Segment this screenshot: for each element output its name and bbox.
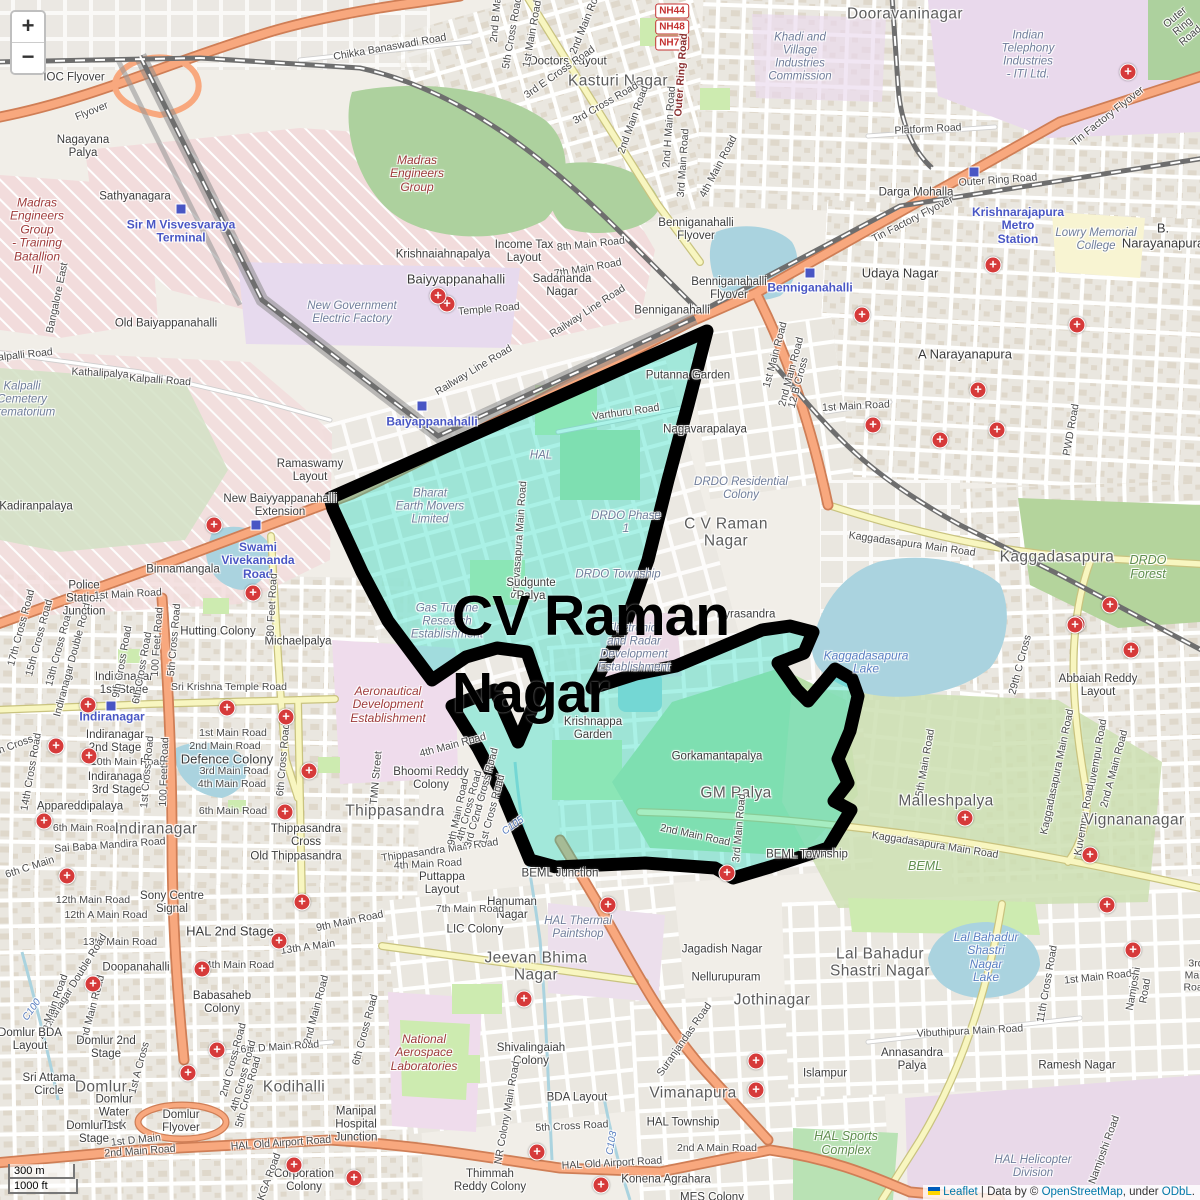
zoom-in-button[interactable]: + (12, 12, 44, 43)
attribution-under: , under (1123, 1186, 1162, 1198)
zoom-out-button[interactable]: − (12, 43, 44, 73)
map-canvas[interactable]: IOC FlyoverFlyoverNagayana PalyaSathyana… (0, 0, 1200, 1200)
odbl-link[interactable]: ODbL (1162, 1186, 1192, 1198)
zoom-control: + − (10, 10, 46, 75)
scale-control: 300 m 1000 ft (8, 1164, 78, 1194)
leaflet-link[interactable]: Leaflet (943, 1186, 978, 1198)
attribution-bar: Leaflet | Data by © OpenStreetMap, under… (923, 1185, 1200, 1200)
attribution-text: | Data by © (978, 1186, 1042, 1198)
highlight-area-title: CV Raman Nagar (452, 578, 729, 732)
attribution-period: . (1192, 1186, 1195, 1198)
scale-imperial: 1000 ft (8, 1179, 78, 1194)
scale-metric: 300 m (8, 1164, 75, 1179)
ukraine-flag-icon (928, 1187, 940, 1195)
openstreetmap-link[interactable]: OpenStreetMap (1042, 1186, 1123, 1198)
